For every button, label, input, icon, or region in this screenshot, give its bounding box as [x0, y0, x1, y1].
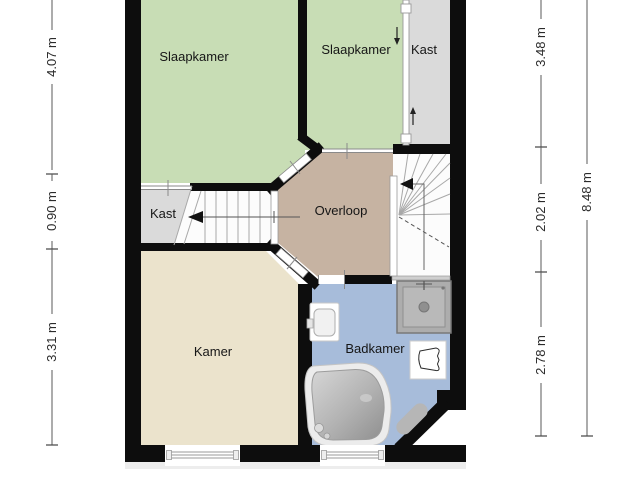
room-kast-2-floor [405, 0, 450, 145]
room-label-slaapkamer-2: Slaapkamer [321, 42, 391, 57]
dim-right-top: 3.48 m [533, 27, 548, 67]
dim-right-bottom: 2.78 m [533, 335, 548, 375]
stairwell-badkamer-edge [392, 276, 450, 280]
wall-kamer-top [125, 243, 272, 251]
room-label-slaapkamer-1: Slaapkamer [159, 49, 229, 64]
wall-left-exterior [125, 0, 141, 462]
wall-stairwell-top [393, 144, 466, 154]
room-label-kast-2: Kast [411, 42, 437, 57]
badkamer-door-opening [318, 275, 345, 284]
room-slaapkamer-1-floor [141, 0, 305, 183]
window-icon [320, 445, 385, 466]
wall-bedroom-divider [298, 0, 307, 139]
floor-plan-page: Slaapkamer Slaapkamer Kast Kast Overloop… [0, 0, 640, 480]
washbasin-icon [307, 303, 339, 341]
window-icon [165, 445, 240, 466]
wall-bottom-3 [385, 445, 466, 462]
dim-right-total: 8.48 m [579, 172, 594, 212]
room-label-kast-1: Kast [150, 206, 176, 221]
room-label-overloop: Overloop [315, 203, 368, 218]
wall-bottom-2 [240, 445, 320, 462]
dim-left-middle: 0.90 m [44, 191, 59, 231]
stairs-right-balustrade [390, 176, 397, 276]
dim-left-top: 4.07 m [44, 37, 59, 77]
toilet-icon [410, 341, 446, 379]
room-label-badkamer: Badkamer [345, 341, 405, 356]
wall-slaapkamer1-bottom [190, 183, 278, 191]
floor-plan-canvas: Slaapkamer Slaapkamer Kast Kast Overloop… [0, 0, 640, 480]
dim-left-bottom: 3.31 m [44, 322, 59, 362]
wall-bottom-1 [125, 445, 165, 462]
wall-right-exterior [450, 0, 466, 410]
wall-overloop-bottom [345, 275, 392, 284]
bathtub-icon [305, 363, 391, 446]
shower-icon [397, 281, 451, 333]
room-slaapkamer-2-floor [305, 0, 405, 150]
room-label-kamer: Kamer [194, 344, 233, 359]
stairs-right-floor [393, 154, 450, 277]
dim-right-middle: 2.02 m [533, 192, 548, 232]
